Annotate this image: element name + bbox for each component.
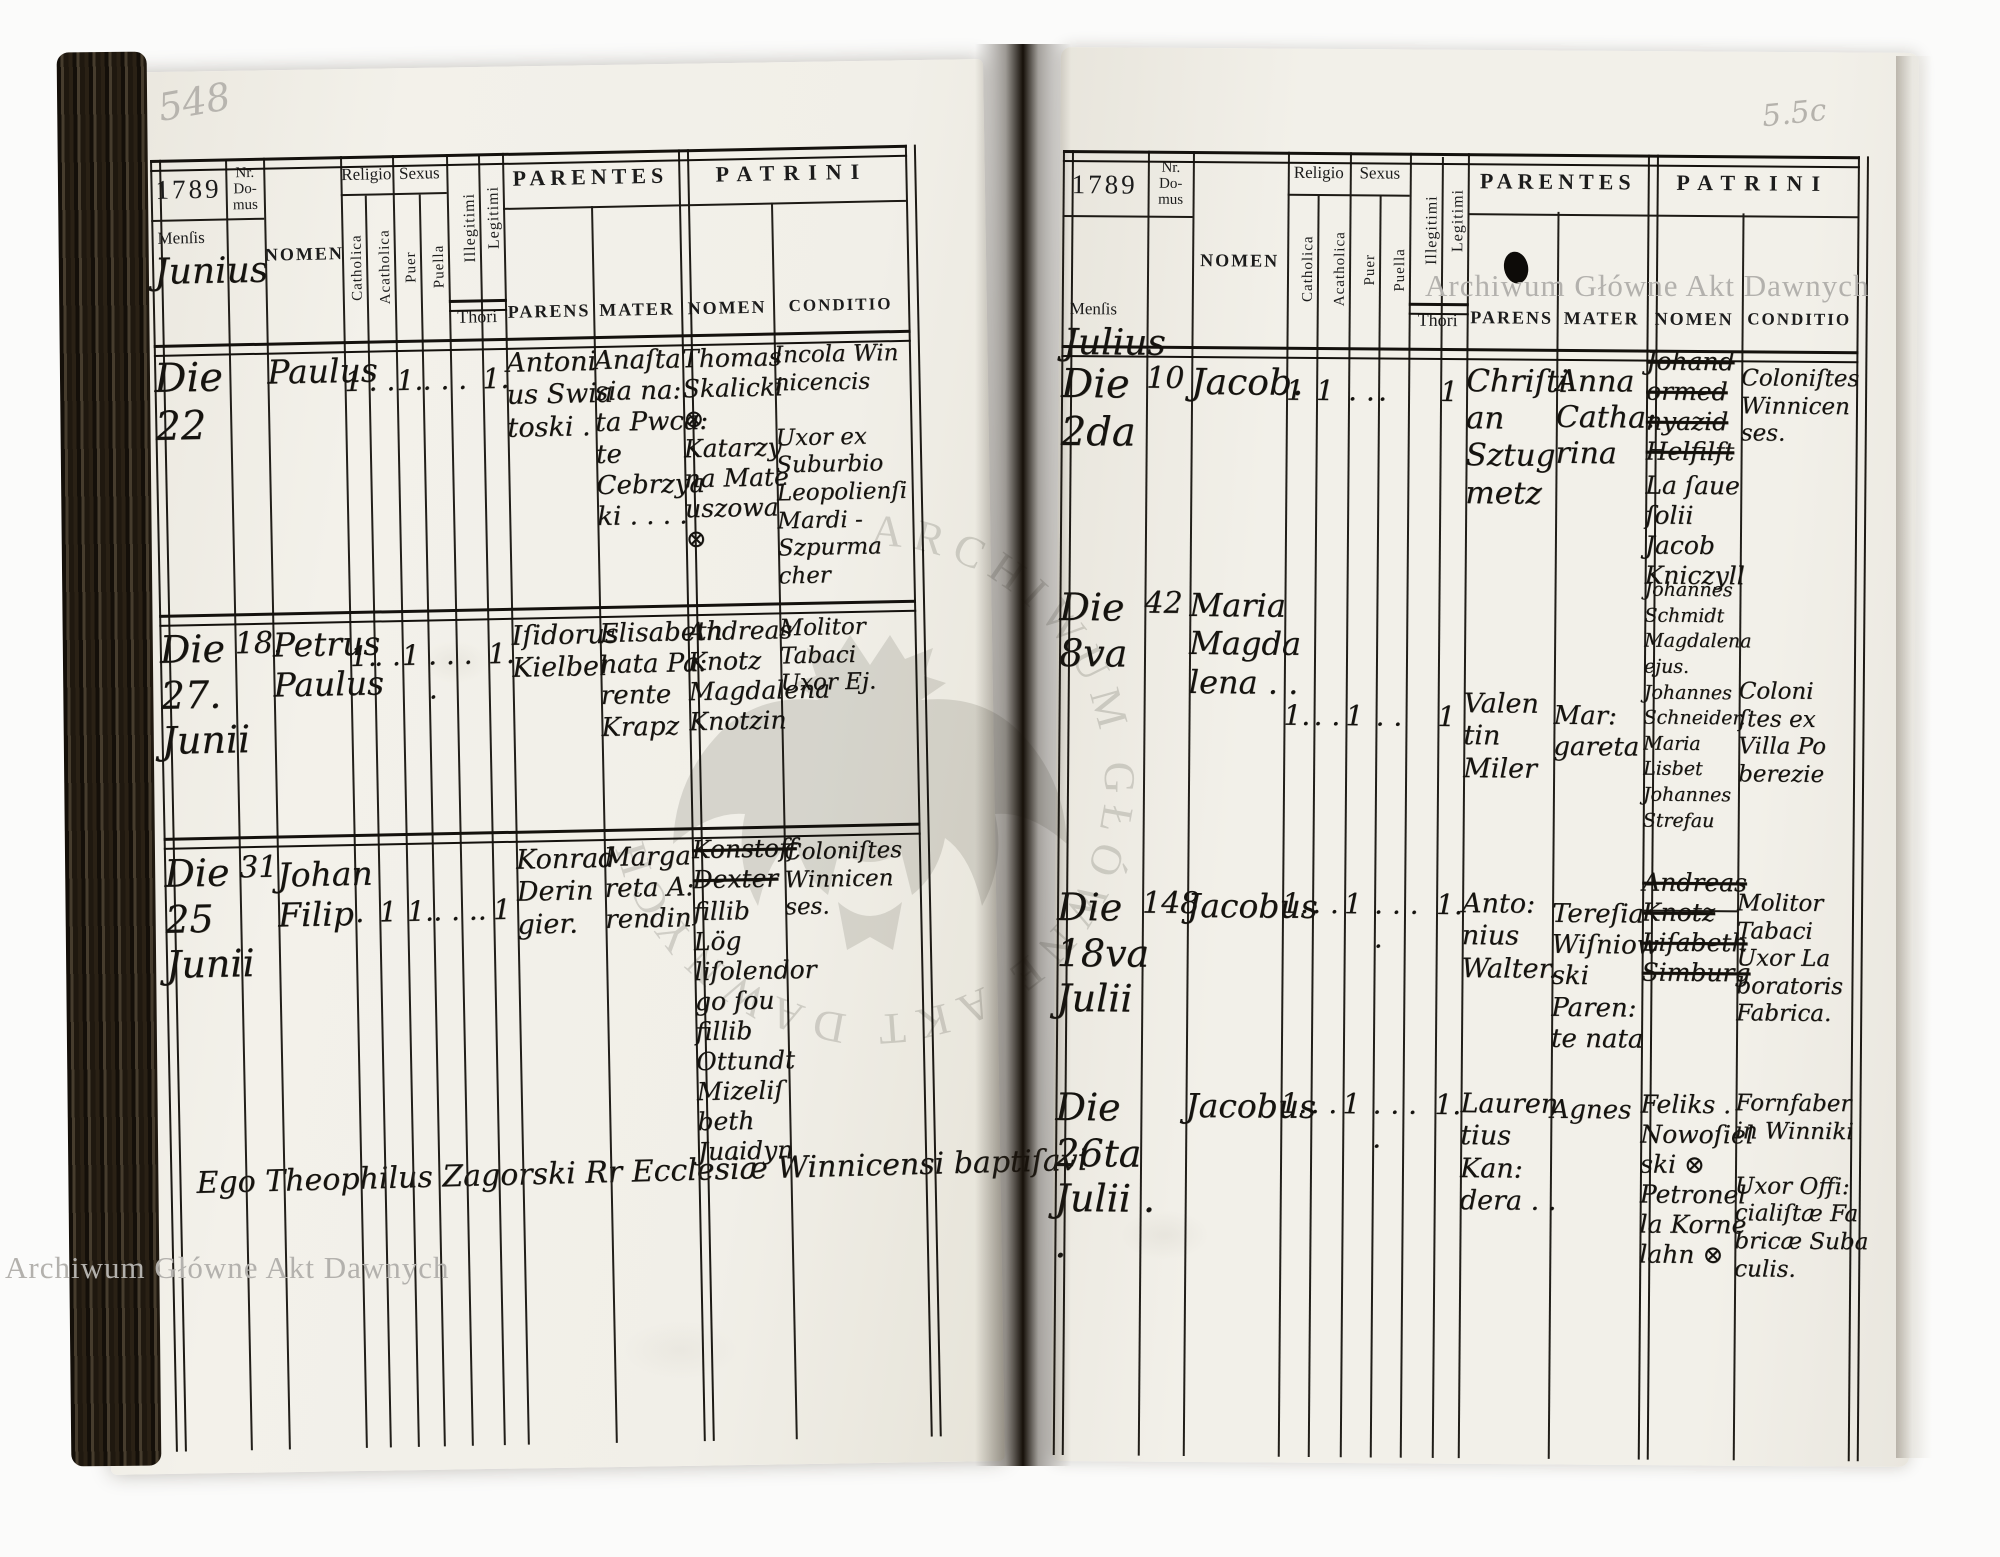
archive-watermark-bottom-left: Archiwum Główne Akt Dawnych	[5, 1250, 450, 1286]
religio-header: Religio	[1288, 164, 1350, 182]
nr-domus-header: Nr. Do- mus	[226, 166, 264, 214]
cell-conditio: Molitor Tabaci Uxor Ej.	[779, 612, 946, 698]
year-label: 1789	[1065, 170, 1145, 199]
cell-puella: . . . .	[1374, 887, 1435, 955]
catholica-header: Catholica	[1287, 198, 1318, 340]
cell-puella: . . .	[422, 362, 481, 397]
conditio-header: CONDITIO	[1742, 310, 1857, 329]
cell-conditio: Coloni ſtes ex Villa Po berezie	[1738, 678, 1884, 790]
puer-header: Puer	[1349, 198, 1380, 340]
sexus-header: Sexus	[1350, 164, 1410, 182]
patrini-nomen-header: NOMEN	[681, 298, 773, 319]
mensis-header: Menſis	[1070, 300, 1140, 318]
patrini-header: PATRINI	[678, 159, 905, 187]
cell-puella: . . . .	[428, 637, 487, 705]
acatholica-header: Acatholica	[1317, 198, 1350, 340]
right-register-table: 1789 Nr. Do- mus Menſis Julius NOMEN Rel…	[1053, 150, 1860, 1461]
year-label: 1789	[152, 175, 225, 205]
cell-nomen: Maria Magda lena . .	[1189, 586, 1315, 702]
cell-puella: . . ..	[433, 893, 492, 928]
cell-puella: . . . .	[1372, 1087, 1433, 1155]
mensis-header: Menſis	[157, 228, 227, 247]
nomen-header: NOMEN	[1192, 251, 1287, 271]
cell-conditio: Coloniſtes Winnicen ses.	[1741, 365, 1887, 449]
acatholica-header: Acatholica	[365, 197, 396, 338]
cell-conditio: Molitor Tabaci Uxor La boratoris Fabrica…	[1736, 890, 1882, 1029]
mater-header: MATER	[593, 299, 681, 320]
cell-die: Die 26ta Julii . .	[1054, 1085, 1170, 1268]
parens-header: PARENS	[1467, 308, 1557, 328]
cell-p_nomen: fillib Lög liſolendor go ſou fillib Ottu…	[693, 895, 820, 1167]
parentes-header: PARENTES	[1468, 169, 1648, 194]
archive-watermark-top-right: Archiwum Główne Akt Dawnych	[1425, 268, 1870, 304]
parentes-header: PARENTES	[502, 163, 678, 190]
mater-header: MATER	[1557, 309, 1647, 329]
nr-domus-header: Nr. Do- mus	[1149, 161, 1193, 209]
patrini-header: PATRINI	[1648, 171, 1858, 196]
parens-header: PARENS	[505, 301, 593, 322]
cell-conditio: Coloniſtes Winnicen ses.	[784, 836, 951, 922]
right-page-stack-edge	[1896, 56, 1932, 1458]
row-rule	[151, 218, 264, 222]
illegitimi-header: Illegitimi	[446, 159, 481, 296]
cell-conditio: Incola Win nicencis Uxor ex Suburbio Leo…	[774, 339, 944, 591]
nomen-header: NOMEN	[265, 244, 342, 264]
cell-puella: . .	[1375, 699, 1435, 733]
folio-number-pencil-right: 5.5c	[1760, 93, 1828, 135]
cell-p_nomen: La ſaue ſolii Jacob Kniczyll	[1645, 471, 1771, 592]
row-rule	[1409, 303, 1469, 315]
patrini-nomen-header: NOMEN	[1647, 310, 1742, 330]
cell-puella: .	[1378, 374, 1438, 408]
cell-die: Die 22	[154, 353, 261, 451]
legitimi-header: Legitimi	[1441, 161, 1468, 279]
scanned-register-page: { "header_labels": { "nr_domus": "Nr.\nD…	[0, 0, 2000, 1557]
row-rule	[449, 299, 507, 312]
month-name-script: Junius	[154, 250, 269, 293]
puella-header: Puella	[419, 196, 450, 337]
row-rule	[503, 200, 906, 210]
row-rule	[1062, 215, 1192, 218]
conditio-header: CONDITIO	[773, 295, 908, 316]
cell-conditio: Fornfaber in Winniki Uxor Offi: cialiſtæ…	[1734, 1090, 1881, 1284]
row-rule	[1468, 213, 1858, 218]
puella-header: Puella	[1379, 198, 1410, 340]
